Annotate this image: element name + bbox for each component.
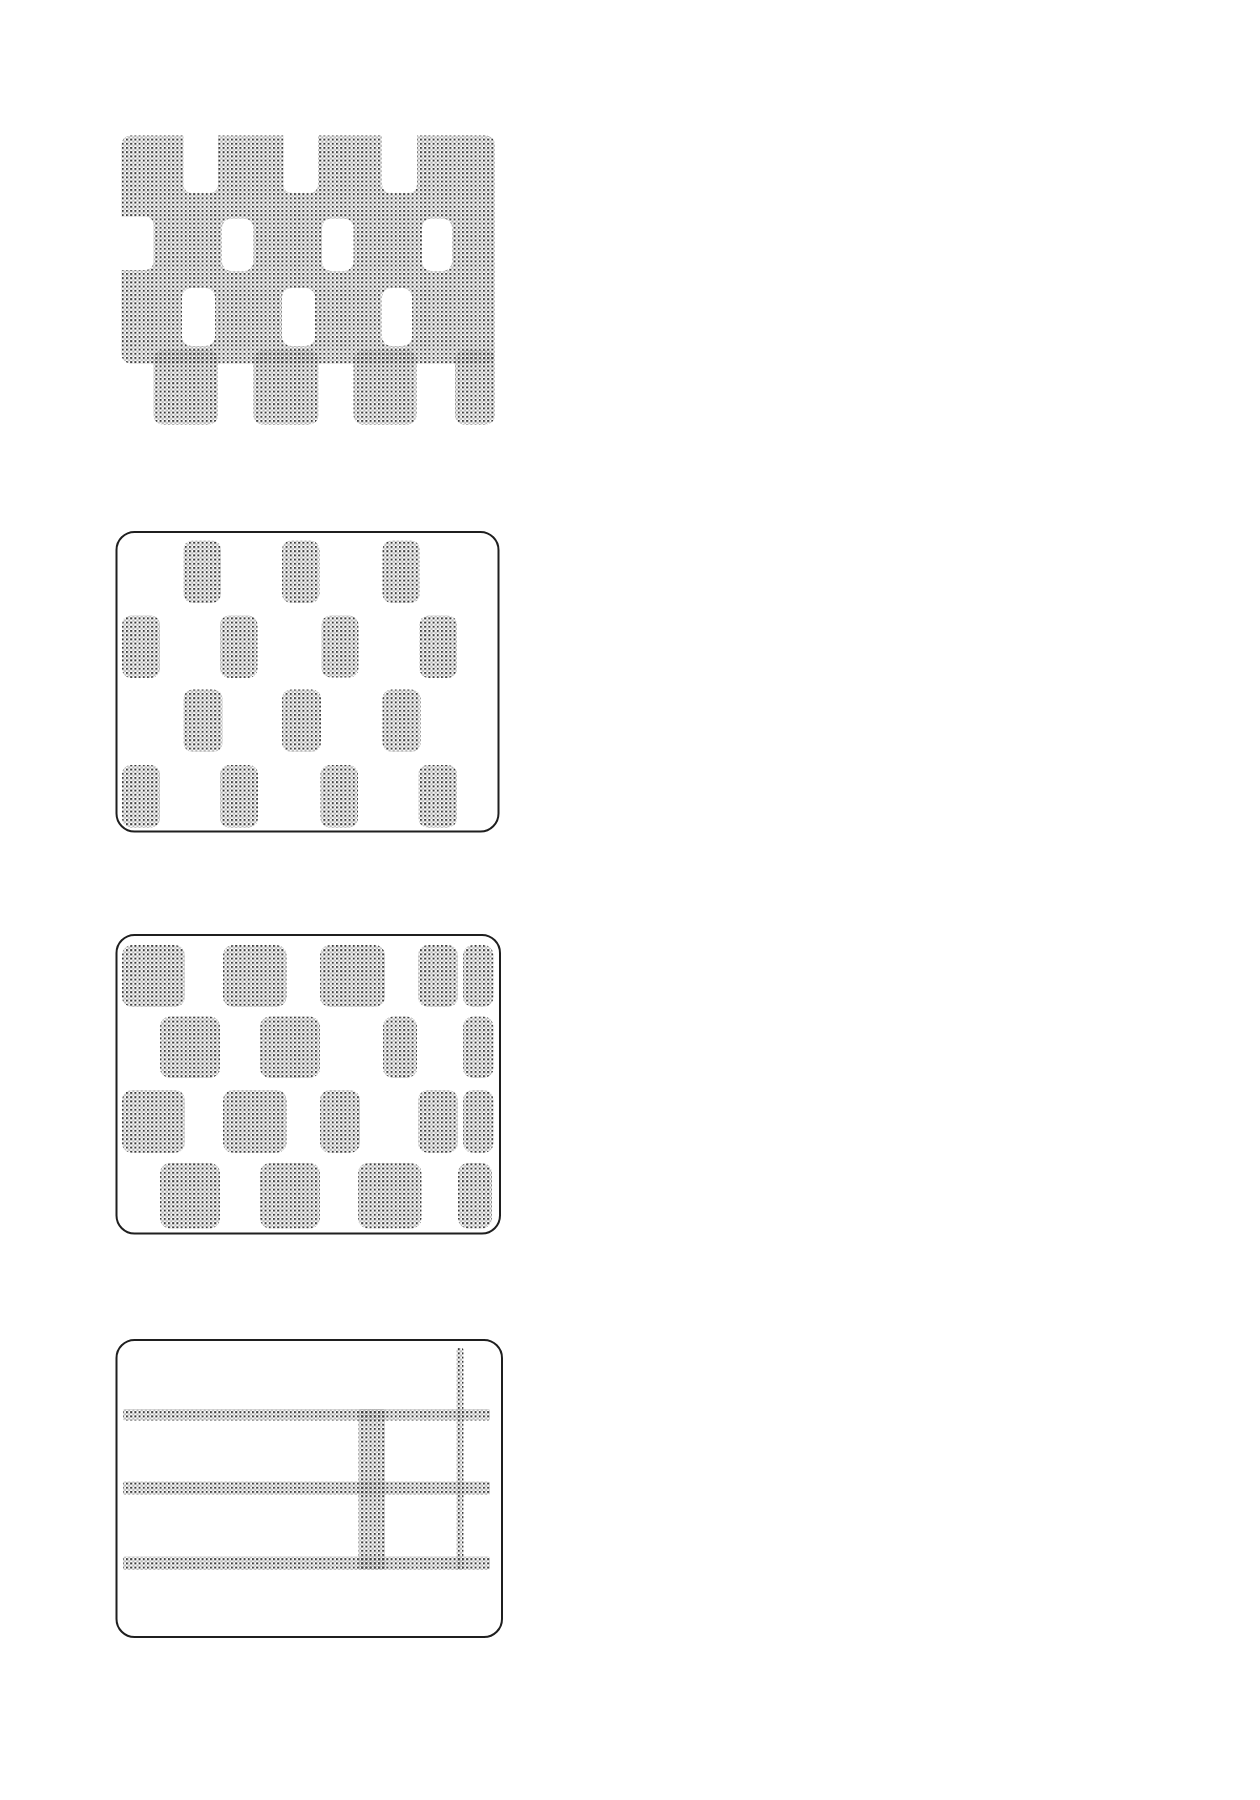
halftone-block bbox=[354, 350, 417, 425]
halftone-block bbox=[184, 541, 222, 604]
halftone-block bbox=[458, 1163, 492, 1229]
halftone-block bbox=[383, 541, 421, 604]
figure-1-perforated-halftone-sheet bbox=[110, 124, 506, 430]
halftone-block bbox=[220, 616, 258, 679]
white-cutout bbox=[422, 219, 452, 272]
halftone-block bbox=[254, 350, 319, 425]
halftone-block bbox=[457, 1348, 464, 1570]
white-cutout bbox=[382, 288, 412, 346]
halftone-block bbox=[418, 1090, 458, 1153]
halftone-block bbox=[123, 1482, 490, 1496]
halftone-block bbox=[320, 945, 385, 1007]
halftone-block bbox=[463, 945, 494, 1007]
halftone-block bbox=[122, 616, 160, 679]
halftone-block bbox=[463, 1017, 494, 1079]
halftone-block bbox=[122, 1090, 185, 1153]
figure-2-dotted-rectangles-swatch bbox=[112, 527, 504, 837]
white-cutout bbox=[222, 219, 254, 272]
halftone-block bbox=[223, 945, 287, 1007]
halftone-block bbox=[359, 1409, 386, 1570]
halftone-block bbox=[282, 690, 321, 753]
halftone-block bbox=[420, 616, 458, 679]
halftone-block bbox=[455, 350, 495, 425]
halftone-block bbox=[122, 765, 160, 828]
halftone-block bbox=[322, 616, 359, 678]
halftone-block bbox=[383, 1017, 417, 1079]
white-cutout bbox=[182, 288, 215, 346]
halftone-block bbox=[282, 541, 320, 604]
halftone-block bbox=[419, 765, 458, 828]
halftone-block bbox=[122, 945, 185, 1007]
halftone-block bbox=[160, 1163, 220, 1229]
halftone-block bbox=[383, 690, 421, 753]
halftone-block bbox=[321, 765, 359, 828]
white-cutout bbox=[382, 126, 417, 193]
figure-4-dotted-grid-swatch bbox=[112, 1335, 507, 1642]
halftone-block bbox=[418, 945, 458, 1007]
halftone-block bbox=[358, 1163, 422, 1229]
white-cutout bbox=[184, 126, 219, 193]
figure-3-dotted-squares-swatch bbox=[112, 930, 505, 1239]
halftone-block bbox=[184, 690, 223, 753]
white-cutout bbox=[282, 288, 315, 346]
white-cutout bbox=[284, 126, 319, 193]
halftone-block bbox=[154, 350, 219, 425]
white-cutout bbox=[110, 217, 154, 271]
halftone-block bbox=[463, 1090, 494, 1153]
halftone-block bbox=[160, 1017, 220, 1079]
halftone-block bbox=[223, 1090, 287, 1153]
halftone-block bbox=[123, 1557, 490, 1571]
halftone-block bbox=[220, 765, 258, 828]
white-cutout bbox=[322, 219, 354, 272]
document-page bbox=[0, 0, 1260, 1800]
halftone-block bbox=[320, 1090, 360, 1153]
halftone-block bbox=[260, 1163, 320, 1229]
halftone-block bbox=[123, 1409, 490, 1421]
halftone-block bbox=[260, 1017, 320, 1079]
